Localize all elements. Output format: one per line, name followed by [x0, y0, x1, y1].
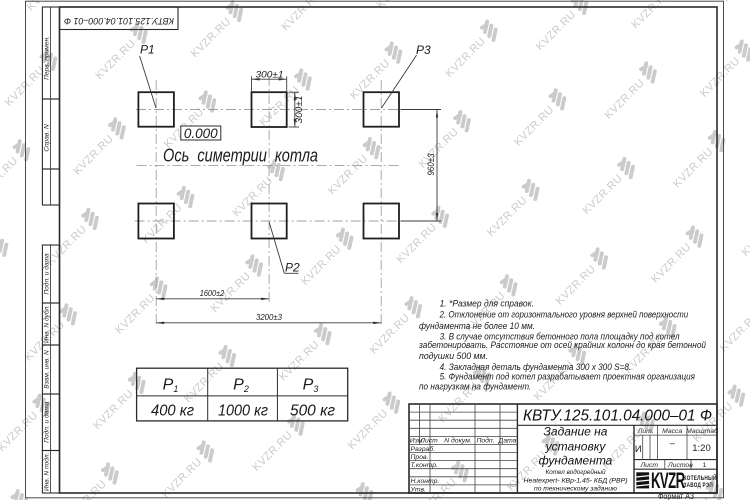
svg-text:Т.контр.: Т.контр.: [411, 462, 439, 469]
svg-text:KVZR.RU: KVZR.RU: [395, 221, 440, 266]
svg-text:KVZR.RU: KVZR.RU: [485, 194, 530, 239]
svg-text:N докум.: N докум.: [444, 437, 472, 445]
svg-text:Подп. и дата: Подп. и дата: [43, 401, 51, 443]
svg-text:500 кг: 500 кг: [290, 402, 335, 419]
svg-text:по нагрузкам на фундамент.: по нагрузкам на фундамент.: [419, 381, 531, 391]
svg-text:Взам. инв. N: Взам. инв. N: [44, 350, 51, 389]
svg-text:1600±2: 1600±2: [200, 288, 225, 298]
svg-text:KVZR.RU: KVZR.RU: [581, 172, 626, 217]
svg-text:KVZR.RU: KVZR.RU: [93, 37, 138, 82]
svg-text:Р3: Р3: [303, 376, 319, 394]
svg-text:ЗАВОД РЭП: ЗАВОД РЭП: [684, 483, 714, 489]
svg-text:300±1: 300±1: [294, 96, 304, 124]
svg-text:установку: установку: [545, 439, 607, 453]
svg-text:Перв. примен.: Перв. примен.: [44, 36, 51, 80]
svg-text:KVZR.RU: KVZR.RU: [718, 310, 750, 355]
svg-text:4. Закладная деталь фундамента: 4. Закладная деталь фундамента 300 x 300…: [440, 362, 632, 372]
svg-text:1:20: 1:20: [692, 443, 711, 454]
svg-text:KVZR.RU: KVZR.RU: [629, 0, 674, 31]
svg-text:Справ. N: Справ. N: [44, 124, 51, 152]
svg-text:KVZR.RU: KVZR.RU: [64, 478, 109, 500]
svg-text:Н.контр.: Н.контр.: [411, 478, 440, 485]
svg-text:KVZR.RU: KVZR.RU: [277, 339, 322, 384]
svg-text:KVZR.RU: KVZR.RU: [45, 223, 90, 268]
svg-text:KVZR: KVZR: [651, 469, 685, 493]
svg-text:KVZR.RU: KVZR.RU: [91, 387, 136, 432]
svg-text:подушки 500 мм.: подушки 500 мм.: [419, 351, 488, 361]
svg-text:KVZR.RU: KVZR.RU: [189, 16, 234, 61]
svg-text:Р2: Р2: [233, 376, 249, 394]
svg-text:KVZR.RU: KVZR.RU: [71, 133, 116, 178]
svg-text:Р2: Р2: [285, 261, 300, 275]
svg-text:Р3: Р3: [416, 43, 431, 57]
svg-text:300±1: 300±1: [256, 70, 284, 80]
svg-text:Лит.: Лит.: [637, 428, 654, 435]
svg-text:KVZR.RU: KVZR.RU: [720, 0, 750, 4]
svg-text:KVZR.RU: KVZR.RU: [443, 35, 488, 80]
svg-text:Утв.: Утв.: [410, 486, 427, 493]
svg-text:Дата: Дата: [498, 438, 517, 445]
svg-text:Котел водогрейный: Котел водогрейный: [546, 468, 606, 476]
svg-text:KVZR.RU: KVZR.RU: [182, 361, 227, 406]
svg-text:фундамента: фундамента: [539, 453, 613, 467]
svg-text:KVZR.RU: KVZR.RU: [698, 55, 743, 100]
svg-text:Подп.: Подп.: [476, 437, 494, 445]
svg-text:KVZR.RU: KVZR.RU: [231, 175, 276, 220]
svg-text:KVZR.RU: KVZR.RU: [512, 104, 557, 149]
svg-text:Пров.: Пров.: [411, 454, 429, 461]
svg-text:KVZR.RU: KVZR.RU: [375, 0, 420, 11]
svg-text:Heatexpert- КВр-1,45- КБД (РВР: Heatexpert- КВр-1,45- КБД (РВР): [524, 477, 628, 484]
svg-text:КВТУ.125.101.04.000–01 Ф: КВТУ.125.101.04.000–01 Ф: [64, 15, 174, 26]
svg-text:KVZR.RU: KVZR.RU: [554, 263, 599, 308]
svg-text:фундамента не более 10 мм.: фундамента не более 10 мм.: [419, 321, 535, 331]
svg-text:забетонировать. Расстояние от: забетонировать. Расстояние от осей крайн…: [418, 340, 706, 350]
svg-text:1. *Размер для справок.: 1. *Размер для справок.: [440, 298, 534, 308]
svg-text:Масса: Масса: [662, 428, 682, 435]
svg-text:1: 1: [703, 462, 707, 469]
svg-text:Ось симетрии котла: Ось симетрии котла: [163, 145, 318, 165]
svg-text:5. Фундамент под котел разраба: 5. Фундамент под котел разрабатывает про…: [440, 372, 696, 382]
svg-text:KVZR.RU: KVZR.RU: [299, 243, 344, 288]
svg-text:Р1: Р1: [163, 376, 179, 394]
svg-text:KVZR.RU: KVZR.RU: [534, 8, 579, 53]
svg-text:KVZR.RU: KVZR.RU: [416, 126, 461, 171]
svg-text:по техническому заданию: по техническому заданию: [534, 484, 617, 492]
svg-text:1000 кг: 1000 кг: [218, 402, 268, 419]
svg-text:КОТЕЛЬНЫЙ: КОТЕЛЬНЫЙ: [684, 474, 717, 482]
svg-text:Формат А3: Формат А3: [658, 492, 694, 500]
svg-text:KVZR.RU: KVZR.RU: [346, 407, 391, 452]
svg-text:–: –: [669, 438, 676, 448]
svg-text:400 кг: 400 кг: [151, 402, 194, 419]
svg-text:КВТУ.125.101.04.000–01 Ф: КВТУ.125.101.04.000–01 Ф: [523, 407, 712, 424]
svg-text:Разраб.: Разраб.: [411, 445, 436, 453]
svg-text:KVZR.RU: KVZR.RU: [671, 146, 716, 191]
svg-text:KVZR.RU: KVZR.RU: [649, 241, 694, 286]
svg-text:KVZR.RU: KVZR.RU: [368, 312, 413, 357]
svg-text:KVZR.RU: KVZR.RU: [113, 292, 158, 337]
svg-text:2. Отклонение от горизонтально: 2. Отклонение от горизонтального уровня …: [439, 310, 689, 320]
svg-text:KVZR.RU: KVZR.RU: [326, 153, 371, 198]
svg-text:Масштаб: Масштаб: [686, 427, 719, 435]
svg-text:3200±3: 3200±3: [256, 312, 282, 322]
svg-text:KVZR.RU: KVZR.RU: [250, 429, 295, 474]
svg-text:960±3: 960±3: [426, 153, 437, 176]
svg-text:Подп. и дата: Подп. и дата: [43, 253, 51, 295]
svg-text:Задание на: Задание на: [544, 425, 608, 439]
svg-text:0.000: 0.000: [184, 126, 218, 141]
svg-text:И: И: [635, 444, 642, 455]
svg-text:KVZR.RU: KVZR.RU: [602, 77, 647, 122]
svg-text:Инв. N подл.: Инв. N подл.: [43, 452, 51, 491]
svg-text:Р1: Р1: [140, 43, 155, 57]
svg-text:KVZR.RU: KVZR.RU: [348, 57, 393, 102]
svg-text:KVZR.RU: KVZR.RU: [279, 0, 324, 33]
svg-text:KVZR.RU: KVZR.RU: [0, 155, 21, 200]
svg-text:KVZR.RU: KVZR.RU: [740, 214, 750, 259]
svg-text:Инв. N дубл.: Инв. N дубл.: [43, 305, 51, 343]
svg-text:KVZR.RU: KVZR.RU: [0, 409, 40, 454]
svg-text:Лист: Лист: [419, 438, 438, 445]
